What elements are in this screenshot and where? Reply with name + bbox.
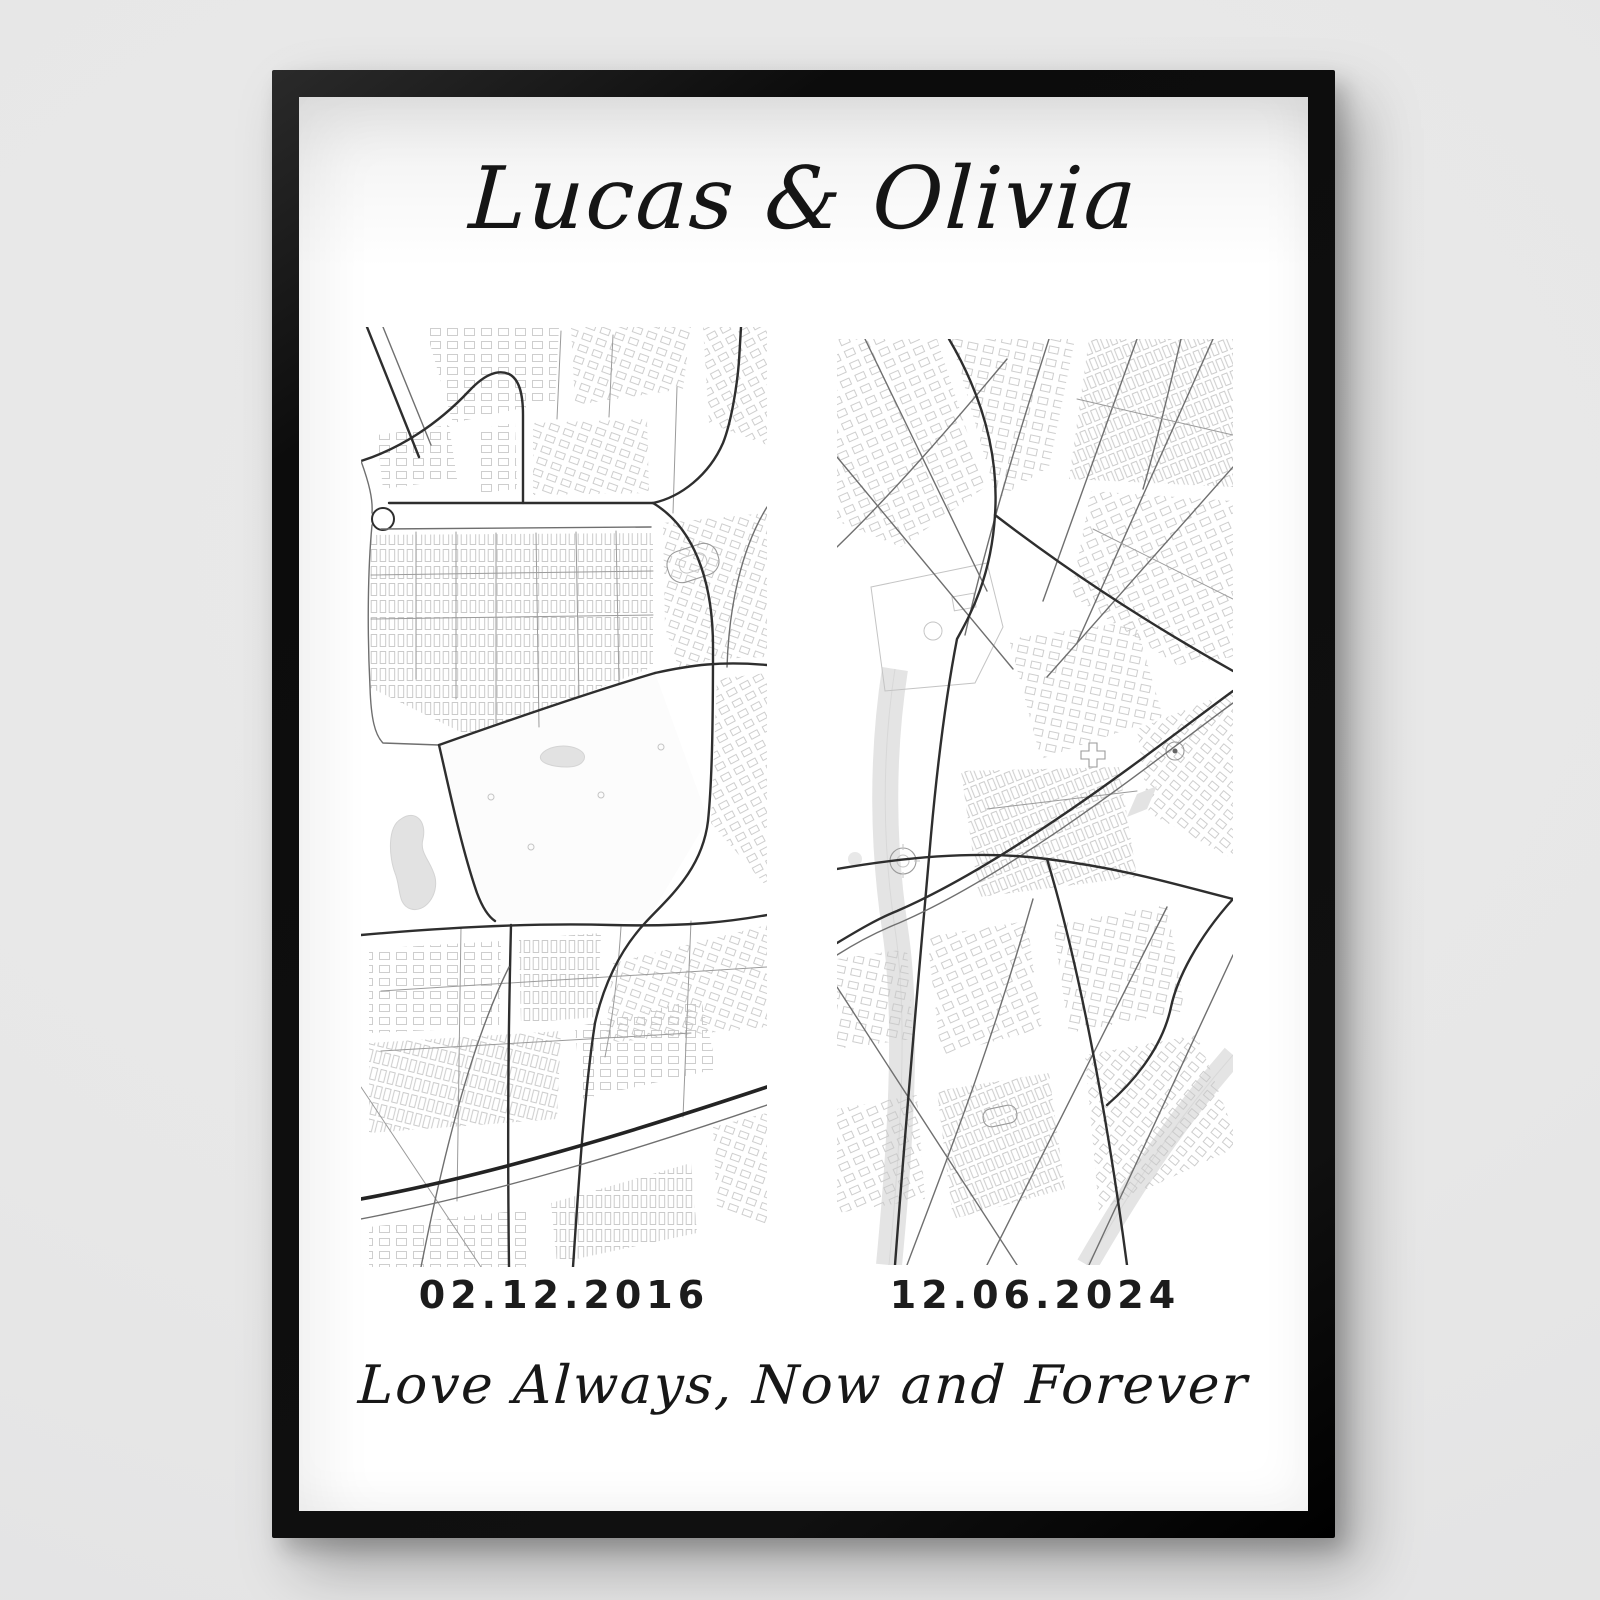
poster: Lucas & Olivia (299, 97, 1308, 1511)
scene-wall: { "scene": { "wall_color": "#e7e7e7", "f… (0, 0, 1600, 1600)
map-panel-right (837, 339, 1233, 1265)
map-date-left: 02.12.2016 (361, 1273, 767, 1317)
map-artwork-right (837, 339, 1233, 1265)
map-date-right: 12.06.2024 (837, 1273, 1233, 1317)
map-panel-left (361, 327, 767, 1267)
church-icon (1081, 743, 1105, 767)
picture-frame: Lucas & Olivia (272, 70, 1335, 1538)
map-pond-small (540, 746, 584, 767)
poster-title: Lucas & Olivia (299, 149, 1308, 249)
map-pond-large (390, 815, 435, 909)
roundabout (372, 508, 394, 530)
map-artwork-left (361, 327, 767, 1267)
poster-caption: Love Always, Now and Forever (299, 1355, 1308, 1416)
